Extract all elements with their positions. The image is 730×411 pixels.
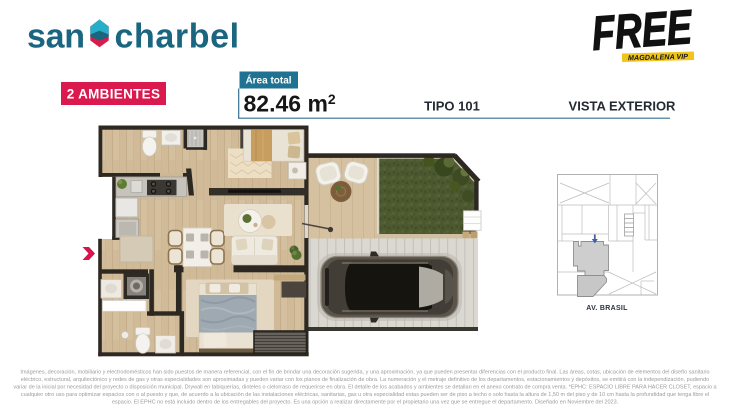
svg-text:variar de la inicial por neces: variar de la inicial por necesidad del p… (13, 385, 717, 391)
svg-text:san: san (27, 18, 85, 56)
svg-text:eléctrico, estructural, arquit: eléctrico, estructural, arquitectónico y… (21, 377, 710, 383)
svg-text:espacio. El EPHC no está inclu: espacio. El EPHC no está incluido dentro… (112, 400, 619, 406)
svg-text:MAGDALENA VIP: MAGDALENA VIP (628, 52, 688, 63)
svg-text:AV. BRASIL: AV. BRASIL (586, 305, 628, 312)
svg-text:2 AMBIENTES: 2 AMBIENTES (67, 87, 161, 102)
svg-text:charbel: charbel (115, 18, 240, 56)
svg-text:82.46 m2: 82.46 m2 (244, 91, 336, 117)
svg-text:cualquier otro uso para optimi: cualquier otro uso para optimizar espaci… (21, 392, 709, 398)
svg-text:VISTA EXTERIOR: VISTA EXTERIOR (569, 99, 677, 114)
svg-text:Imágenes, decoración, mobiliar: Imágenes, decoración, mobiliario y elect… (20, 370, 709, 376)
svg-text:TIPO 101: TIPO 101 (424, 99, 480, 114)
svg-text:Área total: Área total (245, 74, 291, 87)
